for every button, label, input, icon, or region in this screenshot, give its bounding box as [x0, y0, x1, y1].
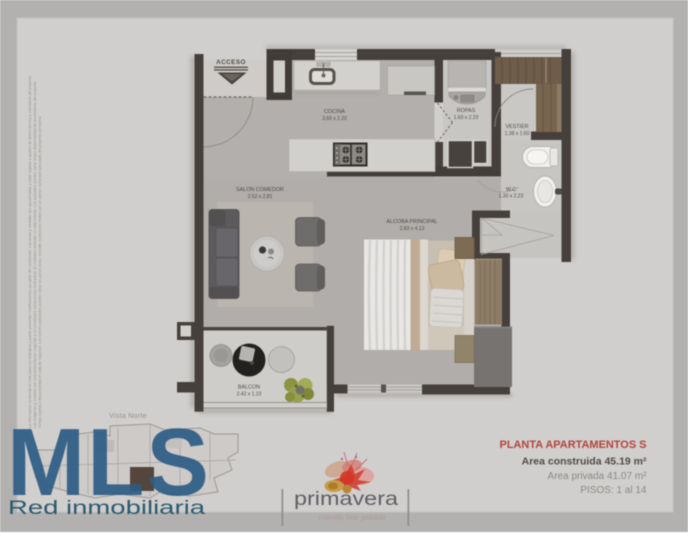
svg-text:primavera: primavera — [294, 488, 398, 510]
svg-text:Ventas sujetas a disponibilida: Ventas sujetas a disponibilidad en sala … — [38, 116, 42, 428]
svg-text:PISOS: 1 al 14: PISOS: 1 al 14 — [580, 485, 647, 496]
svg-text:3.60 x 2.20: 3.60 x 2.20 — [322, 116, 347, 122]
svg-text:VESTIER: VESTIER — [505, 124, 528, 130]
svg-text:ALCOBA PRINCIPAL: ALCOBA PRINCIPAL — [386, 219, 437, 225]
svg-text:SALON COMEDOR: SALON COMEDOR — [236, 187, 284, 193]
svg-text:2.42 x 1.10: 2.42 x 1.10 — [237, 391, 262, 397]
svg-text:1.30 x 2.23: 1.30 x 2.23 — [499, 194, 524, 200]
svg-text:1.38 x 1.60: 1.38 x 1.60 — [505, 131, 530, 137]
svg-text:PLANTA APARTAMENTOS S: PLANTA APARTAMENTOS S — [500, 439, 647, 451]
svg-text:2.52 x 2.81: 2.52 x 2.81 — [248, 194, 273, 200]
svg-text:ACCESO: ACCESO — [216, 59, 246, 66]
svg-text:COCINA: COCINA — [324, 109, 345, 115]
svg-text:cuantity bep gabada: cuantity bep gabada — [318, 513, 386, 522]
svg-text:Area privada 41.07 m²: Area privada 41.07 m² — [548, 471, 648, 482]
svg-text:2.83 x 4.13: 2.83 x 4.13 — [400, 226, 425, 232]
svg-text:1.60 x 2.20: 1.60 x 2.20 — [454, 115, 479, 121]
svg-text:La informacion contenida en es: La informacion contenida en este plano e… — [28, 75, 32, 428]
svg-text:Red inmobiliaria: Red inmobiliaria — [8, 498, 206, 519]
svg-text:W.C: W.C — [506, 187, 516, 193]
svg-text:ROPAS: ROPAS — [457, 108, 476, 114]
svg-text:Las imagenes y muebles son una: Las imagenes y muebles son una ambientac… — [33, 81, 37, 428]
svg-text:BALCON: BALCON — [238, 385, 260, 391]
svg-text:Area construida 45.19 m²: Area construida 45.19 m² — [522, 456, 647, 468]
